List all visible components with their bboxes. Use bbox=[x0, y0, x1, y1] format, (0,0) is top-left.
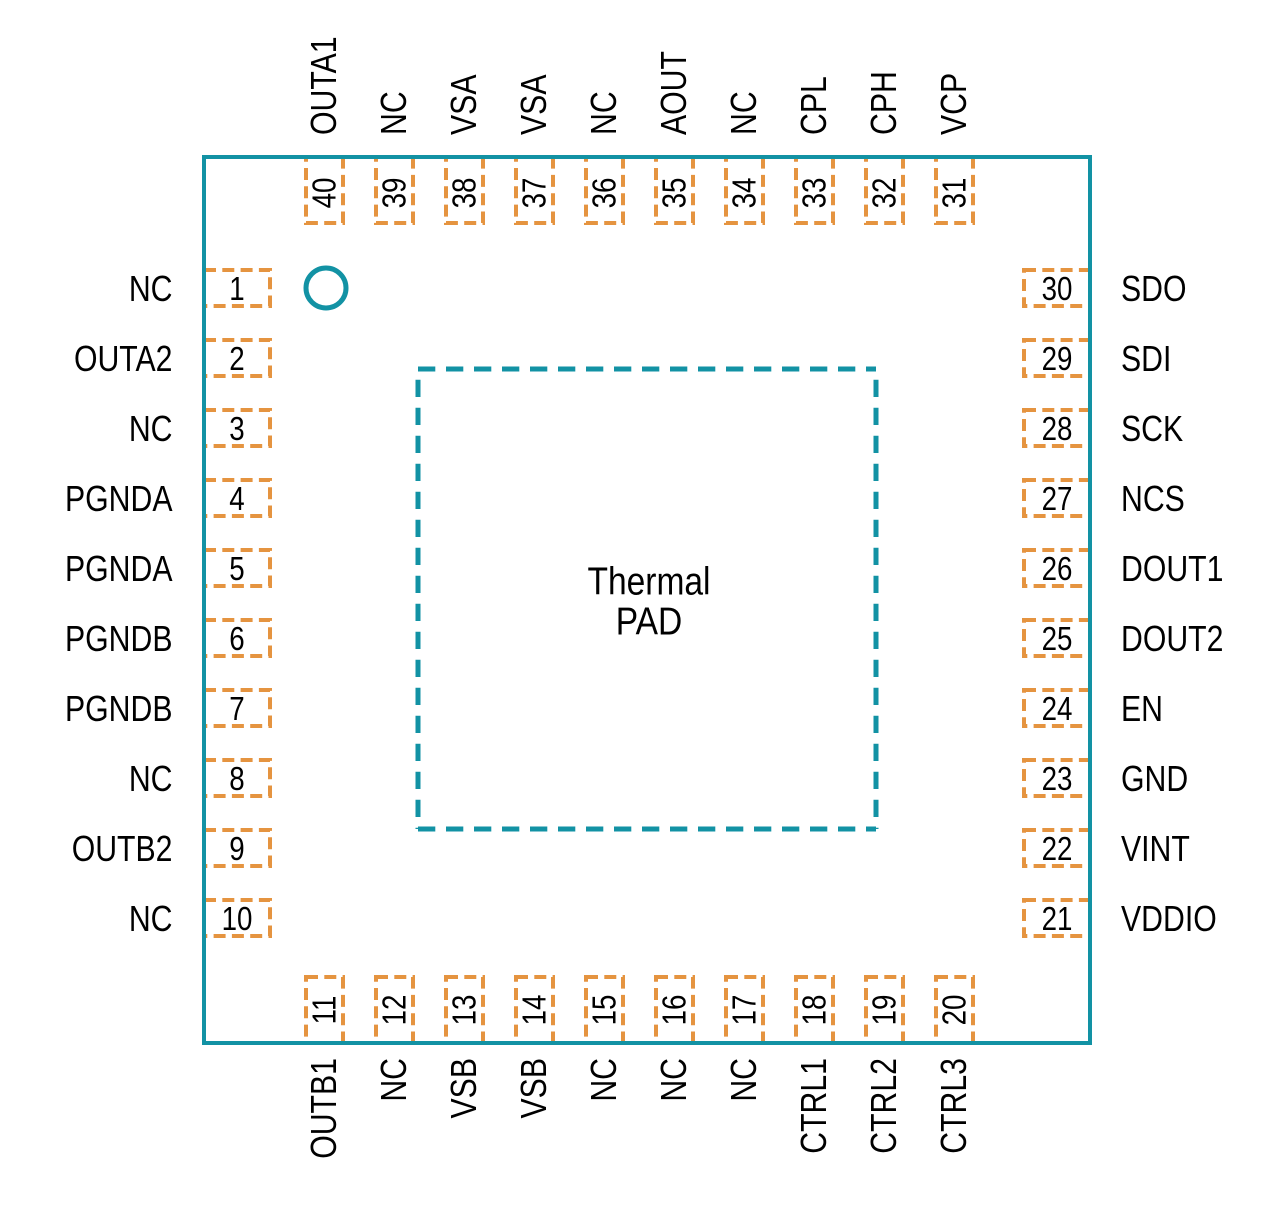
svg-text:6: 6 bbox=[229, 621, 244, 658]
svg-text:PGNDB: PGNDB bbox=[65, 689, 173, 729]
svg-text:18: 18 bbox=[796, 995, 833, 1026]
svg-text:VDDIO: VDDIO bbox=[1121, 899, 1217, 939]
svg-text:37: 37 bbox=[516, 178, 553, 209]
svg-text:31: 31 bbox=[936, 178, 973, 209]
svg-text:PGNDA: PGNDA bbox=[65, 549, 173, 589]
svg-text:7: 7 bbox=[229, 691, 244, 728]
svg-text:30: 30 bbox=[1042, 271, 1073, 308]
svg-text:40: 40 bbox=[306, 178, 343, 209]
svg-text:Thermal: Thermal bbox=[588, 559, 711, 603]
svg-text:22: 22 bbox=[1042, 831, 1073, 868]
svg-text:NC: NC bbox=[129, 759, 173, 799]
svg-text:17: 17 bbox=[726, 995, 763, 1026]
svg-text:5: 5 bbox=[229, 551, 244, 588]
svg-text:VCP: VCP bbox=[934, 73, 974, 135]
svg-text:NC: NC bbox=[129, 409, 173, 449]
svg-text:OUTB2: OUTB2 bbox=[72, 829, 173, 869]
svg-text:VINT: VINT bbox=[1121, 829, 1190, 869]
svg-text:OUTB1: OUTB1 bbox=[304, 1058, 344, 1159]
svg-text:35: 35 bbox=[656, 178, 693, 209]
svg-text:SCK: SCK bbox=[1121, 409, 1183, 449]
svg-text:CTRL1: CTRL1 bbox=[794, 1058, 834, 1154]
svg-text:16: 16 bbox=[656, 995, 693, 1026]
svg-text:9: 9 bbox=[229, 831, 244, 868]
svg-text:DOUT2: DOUT2 bbox=[1121, 619, 1223, 659]
svg-text:8: 8 bbox=[229, 761, 244, 798]
svg-text:PAD: PAD bbox=[616, 599, 682, 643]
svg-text:24: 24 bbox=[1042, 691, 1073, 728]
svg-text:EN: EN bbox=[1121, 689, 1163, 729]
svg-text:12: 12 bbox=[376, 995, 413, 1026]
svg-text:2: 2 bbox=[229, 341, 244, 378]
svg-text:23: 23 bbox=[1042, 761, 1073, 798]
svg-text:14: 14 bbox=[516, 995, 553, 1026]
svg-text:VSB: VSB bbox=[444, 1058, 484, 1119]
svg-text:NC: NC bbox=[584, 91, 624, 135]
svg-text:NC: NC bbox=[374, 91, 414, 135]
svg-text:VSB: VSB bbox=[514, 1058, 554, 1119]
svg-text:OUTA2: OUTA2 bbox=[74, 339, 173, 379]
svg-text:19: 19 bbox=[866, 995, 903, 1026]
svg-text:DOUT1: DOUT1 bbox=[1121, 549, 1223, 589]
svg-text:NC: NC bbox=[724, 1058, 764, 1102]
svg-text:NC: NC bbox=[584, 1058, 624, 1102]
svg-text:NC: NC bbox=[129, 899, 173, 939]
svg-text:11: 11 bbox=[306, 996, 343, 1025]
svg-text:VSA: VSA bbox=[444, 74, 484, 135]
svg-text:AOUT: AOUT bbox=[654, 51, 694, 135]
svg-text:NC: NC bbox=[129, 269, 173, 309]
svg-text:13: 13 bbox=[446, 995, 483, 1026]
svg-text:20: 20 bbox=[936, 995, 973, 1026]
svg-text:NCS: NCS bbox=[1121, 479, 1185, 519]
svg-text:NC: NC bbox=[374, 1058, 414, 1102]
svg-text:27: 27 bbox=[1042, 481, 1073, 518]
svg-text:25: 25 bbox=[1042, 621, 1073, 658]
svg-text:CTRL2: CTRL2 bbox=[864, 1058, 904, 1154]
svg-text:VSA: VSA bbox=[514, 74, 554, 135]
svg-text:NC: NC bbox=[724, 91, 764, 135]
svg-text:29: 29 bbox=[1042, 341, 1073, 378]
svg-text:28: 28 bbox=[1042, 411, 1073, 448]
svg-text:SDI: SDI bbox=[1121, 339, 1171, 379]
svg-text:10: 10 bbox=[222, 901, 253, 938]
svg-text:CPL: CPL bbox=[794, 76, 834, 135]
svg-text:4: 4 bbox=[229, 481, 244, 518]
svg-text:21: 21 bbox=[1042, 901, 1073, 938]
svg-text:32: 32 bbox=[866, 178, 903, 209]
svg-text:SDO: SDO bbox=[1121, 269, 1187, 309]
svg-text:PGNDB: PGNDB bbox=[65, 619, 173, 659]
svg-text:15: 15 bbox=[586, 995, 623, 1026]
svg-text:GND: GND bbox=[1121, 759, 1188, 799]
svg-text:3: 3 bbox=[229, 411, 244, 448]
svg-text:PGNDA: PGNDA bbox=[65, 479, 173, 519]
svg-text:OUTA1: OUTA1 bbox=[304, 36, 344, 135]
svg-text:33: 33 bbox=[796, 178, 833, 209]
svg-text:NC: NC bbox=[654, 1058, 694, 1102]
svg-text:34: 34 bbox=[726, 178, 763, 209]
svg-text:CTRL3: CTRL3 bbox=[934, 1058, 974, 1154]
svg-text:CPH: CPH bbox=[864, 71, 904, 135]
svg-text:38: 38 bbox=[446, 178, 483, 209]
svg-text:26: 26 bbox=[1042, 551, 1073, 588]
svg-text:1: 1 bbox=[229, 271, 244, 308]
svg-text:39: 39 bbox=[376, 178, 413, 209]
svg-text:36: 36 bbox=[586, 178, 623, 209]
